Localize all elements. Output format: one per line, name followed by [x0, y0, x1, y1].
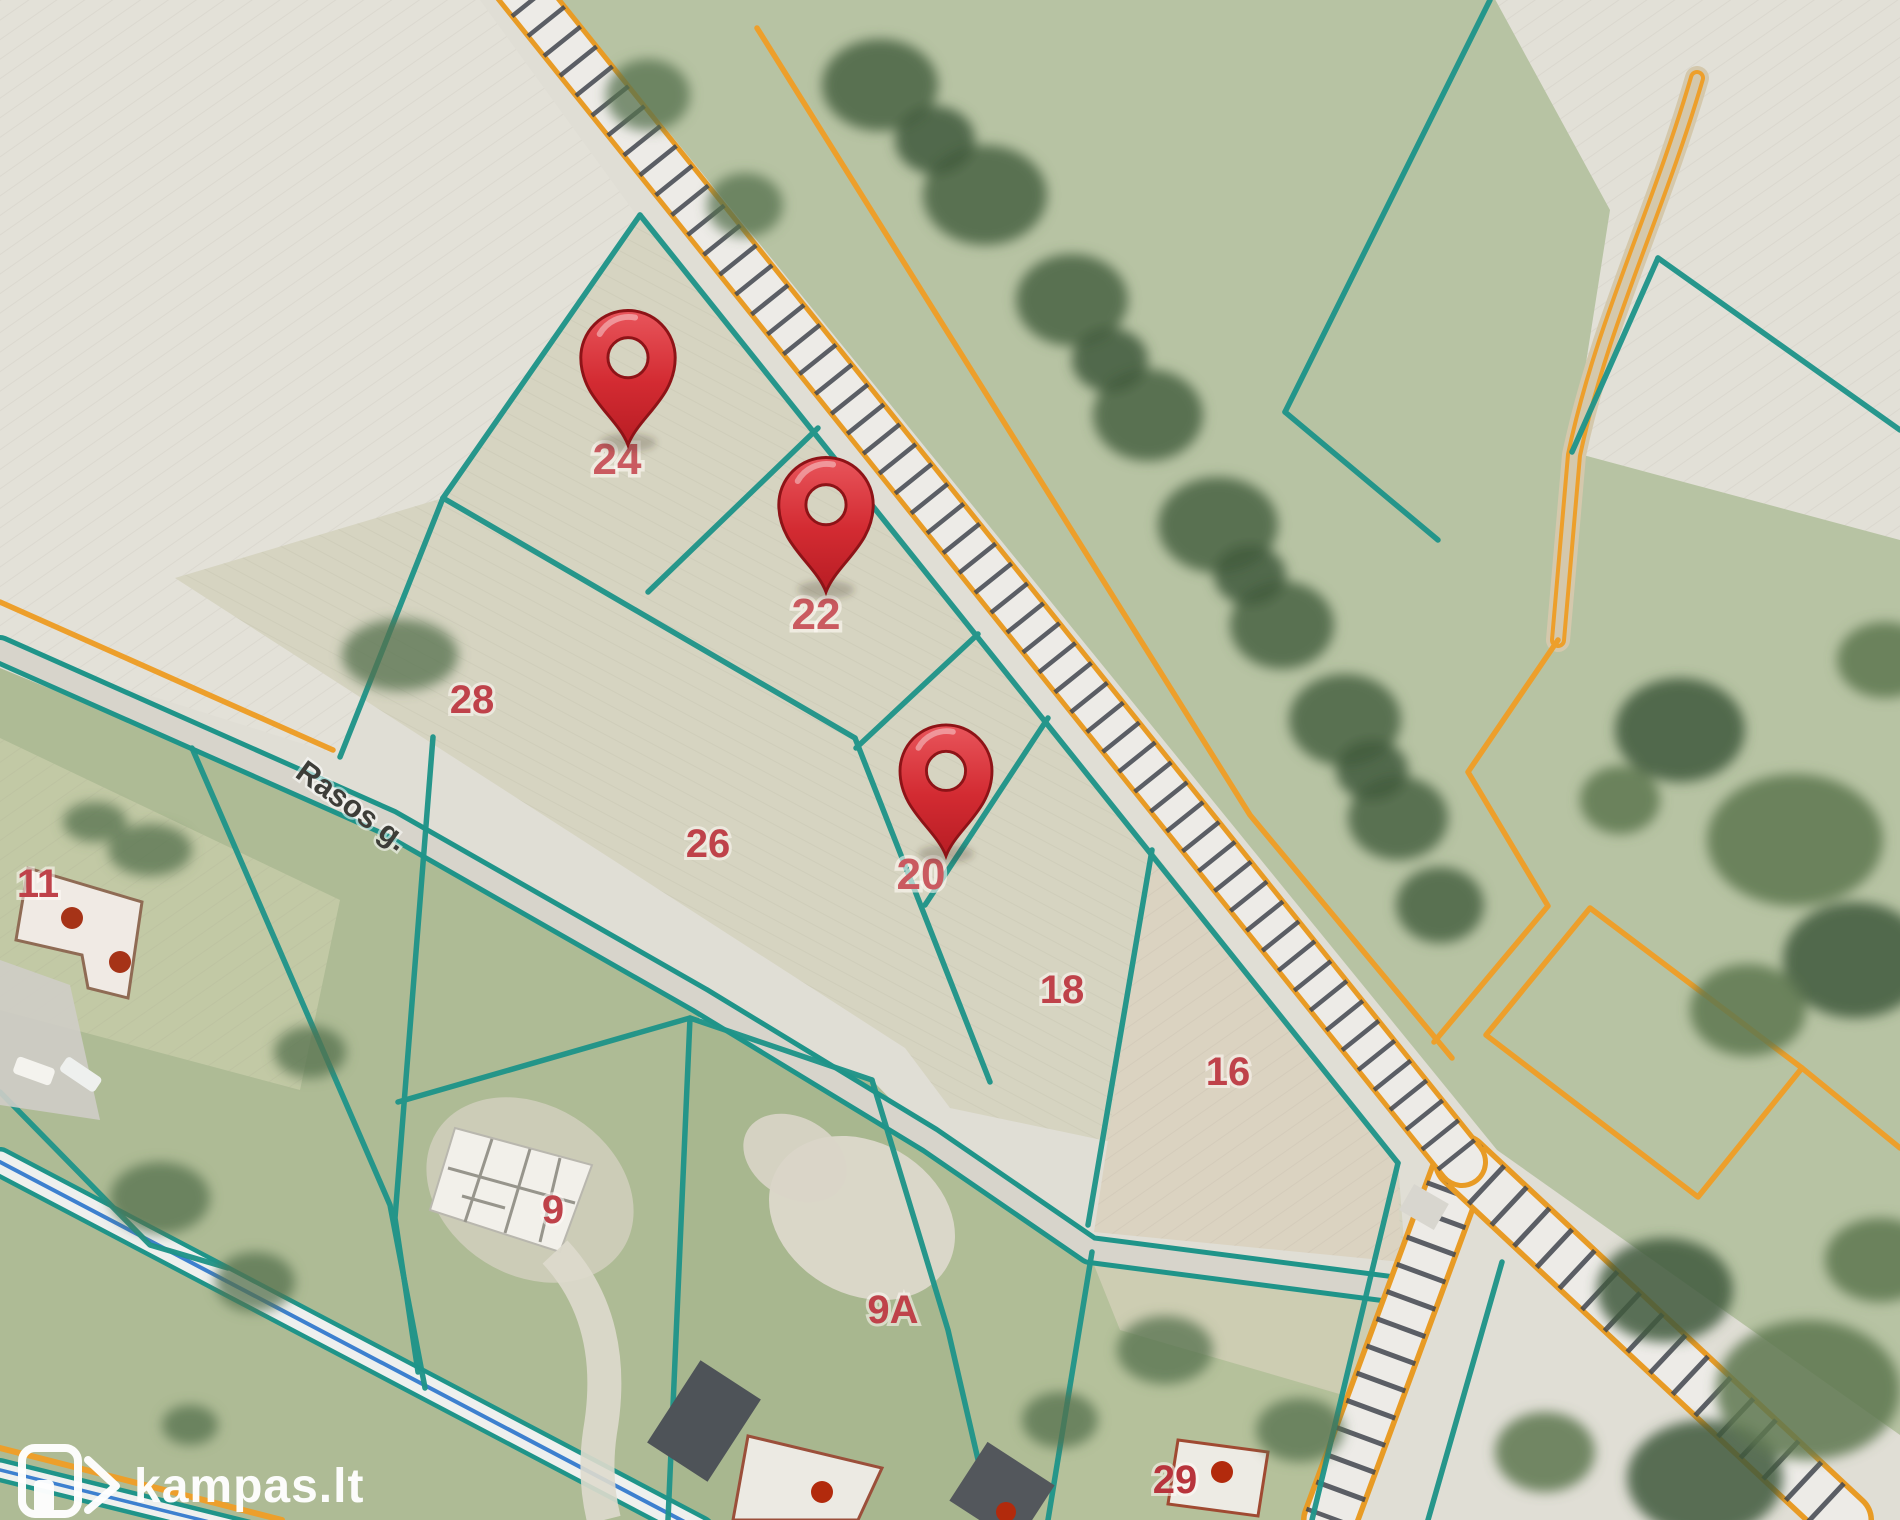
cadastral-map: Rasos g. 24 22 20 28 26 18 16 11 9 9A 29: [0, 0, 1900, 1520]
parcel-label-28: 28: [450, 678, 495, 722]
parcel-label-18: 18: [1040, 968, 1085, 1012]
parcel-label-9: 9: [542, 1188, 564, 1232]
building-11-dot: [61, 907, 83, 929]
parcel-label-16: 16: [1206, 1050, 1251, 1094]
building-29-dot: [1211, 1461, 1233, 1483]
building-dot: [811, 1481, 833, 1503]
kampas-logo-text: kampas.lt: [134, 1460, 364, 1513]
parcel-label-26: 26: [686, 822, 731, 866]
parcel-label-11: 11: [17, 862, 59, 906]
parcel-label-29: 29: [1153, 1458, 1198, 1502]
parcel-label-9a: 9A: [867, 1288, 918, 1332]
building-11-dot2: [109, 951, 131, 973]
